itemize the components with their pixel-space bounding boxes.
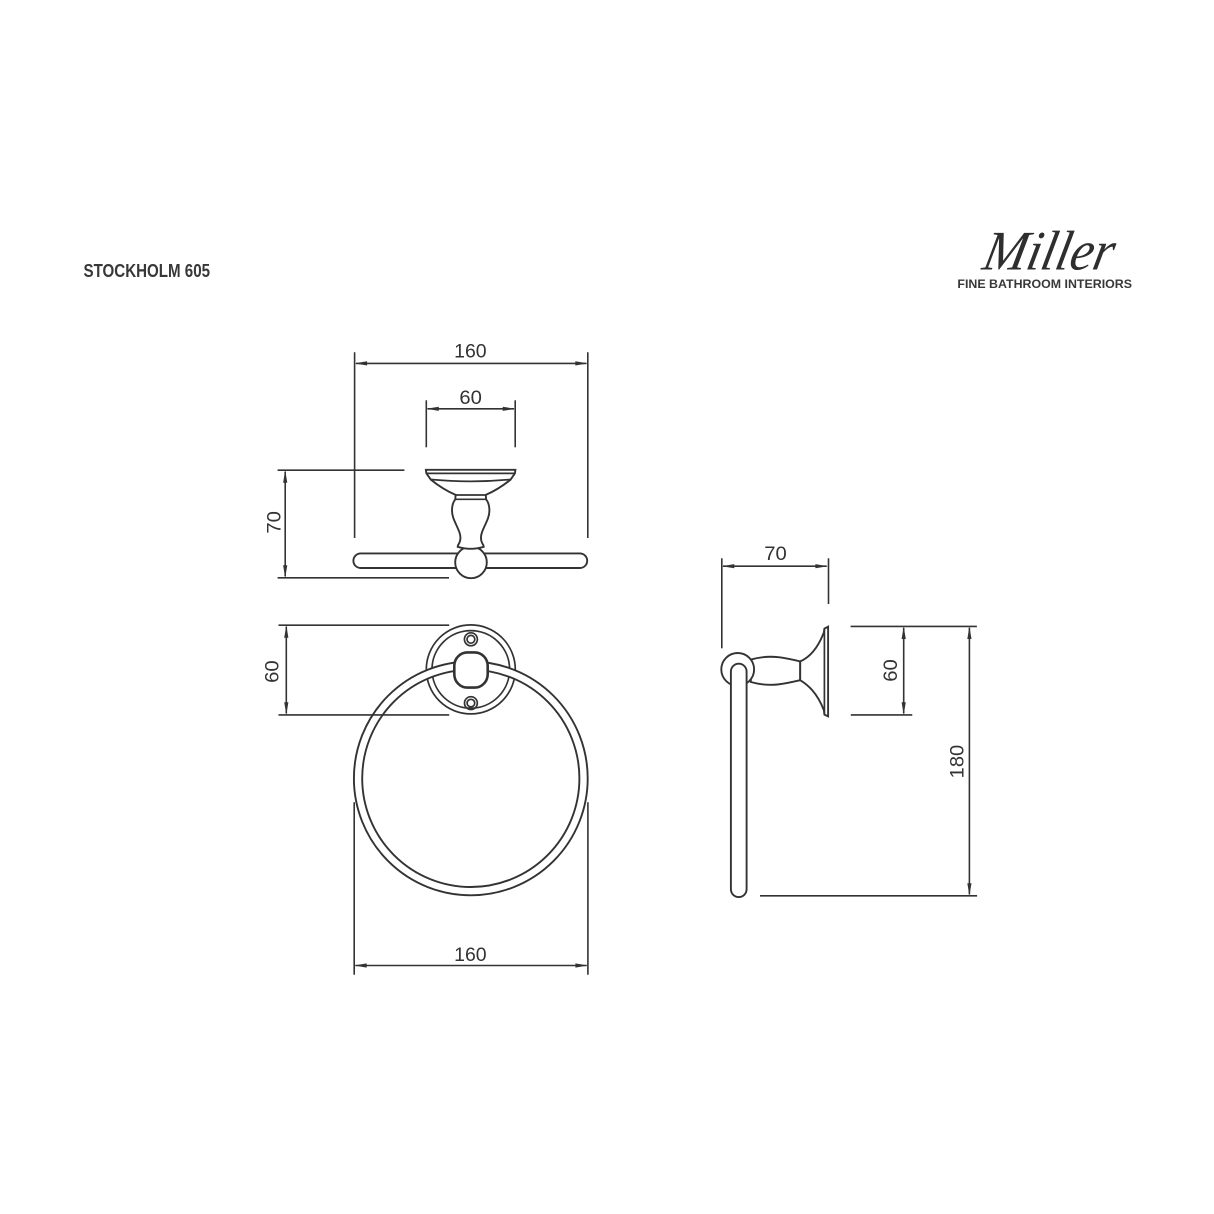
svg-text:160: 160 [454, 944, 487, 966]
svg-text:70: 70 [764, 543, 787, 565]
svg-text:60: 60 [880, 659, 902, 682]
svg-text:60: 60 [262, 660, 284, 683]
svg-text:60: 60 [459, 387, 482, 409]
svg-text:180: 180 [947, 745, 969, 779]
svg-text:Miller: Miller [977, 221, 1122, 282]
svg-text:STOCKHOLM 605: STOCKHOLM 605 [84, 260, 211, 281]
svg-text:70: 70 [263, 511, 285, 534]
svg-text:FINE BATHROOM INTERIORS: FINE BATHROOM INTERIORS [957, 277, 1132, 291]
svg-text:160: 160 [454, 341, 487, 363]
